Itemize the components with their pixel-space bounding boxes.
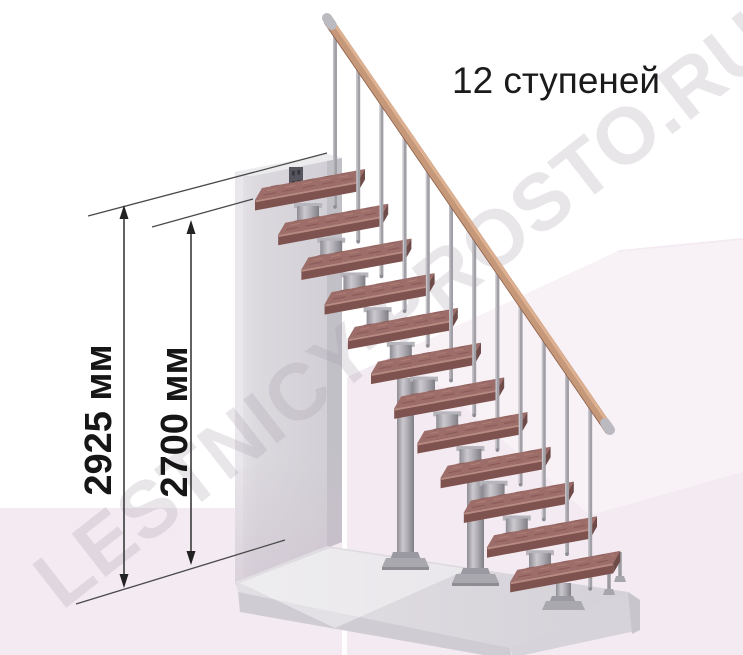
handrail-top-cap: [327, 18, 332, 25]
baluster-bolt: [588, 587, 592, 591]
baluster-bolt: [519, 483, 523, 487]
baluster-bolt: [542, 518, 546, 522]
baluster-bolt: [472, 414, 476, 418]
diagram-canvas: LESTNICY-PROSTO.RU: [0, 0, 743, 655]
dimension-label-total: 2925 мм: [78, 344, 120, 495]
baluster-bolt: [380, 275, 384, 279]
baluster-bolt: [496, 448, 500, 452]
baluster-bolt: [333, 205, 337, 209]
staircase-diagram-figure: LESTNICY-PROSTO.RU: [0, 0, 743, 655]
page-title: 12 ступеней: [452, 60, 660, 101]
baluster-bolt: [426, 344, 430, 348]
baluster-bolt: [565, 552, 569, 556]
dimension-label-inner: 2700 мм: [154, 346, 196, 497]
handrail-bottom-cap: [605, 423, 610, 430]
baluster-bolt: [403, 309, 407, 313]
baluster-bolt: [449, 379, 453, 383]
baluster-bolt: [356, 240, 360, 244]
